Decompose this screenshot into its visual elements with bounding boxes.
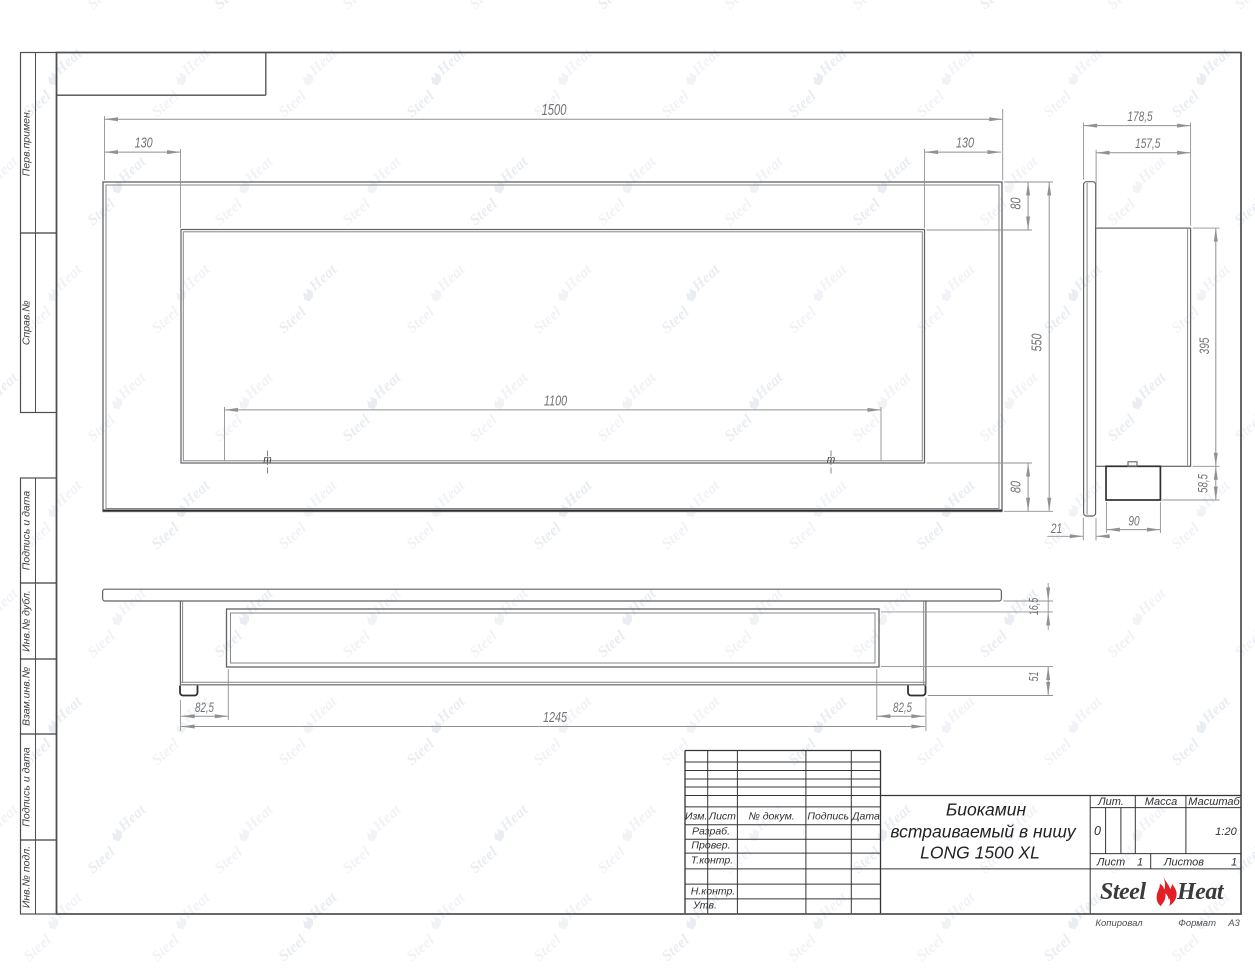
- svg-text:m: m: [827, 455, 835, 466]
- svg-text:Лит.: Лит.: [1097, 796, 1124, 808]
- svg-text:80: 80: [1007, 480, 1024, 493]
- svg-text:№ докум.: № докум.: [748, 810, 794, 822]
- svg-text:Дата: Дата: [851, 810, 880, 822]
- svg-text:21: 21: [1050, 520, 1062, 536]
- svg-text:Heat: Heat: [1176, 879, 1225, 905]
- svg-text:Лист: Лист: [1096, 856, 1125, 868]
- svg-text:Разраб.: Разраб.: [692, 826, 730, 838]
- svg-text:Инв.№ подл.: Инв.№ подл.: [21, 846, 33, 908]
- svg-text:Провер.: Провер.: [691, 840, 730, 852]
- svg-text:80: 80: [1007, 197, 1024, 210]
- svg-text:m: m: [263, 455, 271, 466]
- svg-text:Взам.инв.№: Взам.инв.№: [21, 667, 33, 726]
- svg-text:Steel: Steel: [1100, 879, 1146, 905]
- svg-text:Листов: Листов: [1163, 856, 1204, 868]
- svg-text:130: 130: [135, 134, 154, 151]
- svg-text:А3: А3: [1227, 918, 1240, 929]
- svg-text:Подпись: Подпись: [807, 810, 849, 822]
- svg-text:встраиваемый в нишу: встраиваемый в нишу: [890, 822, 1076, 842]
- svg-text:82,5: 82,5: [893, 701, 912, 716]
- svg-text:Утв.: Утв.: [692, 900, 717, 912]
- svg-text:Подпись и дата: Подпись и дата: [21, 491, 33, 571]
- svg-text:Н.контр.: Н.контр.: [691, 886, 735, 898]
- svg-text:157,5: 157,5: [1135, 136, 1160, 152]
- svg-text:1: 1: [1231, 856, 1237, 868]
- svg-text:Масштаб: Масштаб: [1188, 796, 1240, 808]
- svg-text:550: 550: [1028, 333, 1045, 352]
- svg-text:Копировал: Копировал: [1095, 918, 1143, 929]
- svg-text:LONG 1500 XL: LONG 1500 XL: [920, 843, 1040, 863]
- svg-text:Лист: Лист: [708, 810, 736, 822]
- svg-text:Справ.№: Справ.№: [21, 300, 33, 345]
- svg-text:395: 395: [1196, 337, 1212, 354]
- svg-text:130: 130: [956, 134, 975, 151]
- svg-text:0: 0: [1094, 824, 1101, 838]
- svg-text:Изм.: Изм.: [685, 810, 707, 822]
- svg-text:51: 51: [1027, 671, 1041, 681]
- svg-text:Масса: Масса: [1145, 796, 1178, 808]
- svg-text:178,5: 178,5: [1127, 108, 1152, 124]
- svg-text:1100: 1100: [544, 392, 568, 409]
- svg-text:Т.контр.: Т.контр.: [691, 855, 733, 867]
- svg-text:Инв.№ дубл.: Инв.№ дубл.: [21, 590, 33, 652]
- svg-text:82,5: 82,5: [195, 701, 214, 716]
- svg-text:1245: 1245: [543, 708, 568, 725]
- svg-text:Подпись и дата: Подпись и дата: [21, 747, 33, 827]
- svg-text:16,5: 16,5: [1027, 597, 1041, 615]
- svg-text:90: 90: [1128, 513, 1139, 529]
- svg-text:1: 1: [1137, 856, 1143, 868]
- svg-text:58,5: 58,5: [1196, 474, 1211, 493]
- svg-text:Формат: Формат: [1178, 918, 1216, 929]
- svg-text:1:20: 1:20: [1215, 826, 1237, 838]
- svg-text:Биокамин: Биокамин: [946, 800, 1027, 820]
- svg-text:1500: 1500: [542, 101, 567, 118]
- svg-text:Перв.примен.: Перв.примен.: [21, 109, 33, 176]
